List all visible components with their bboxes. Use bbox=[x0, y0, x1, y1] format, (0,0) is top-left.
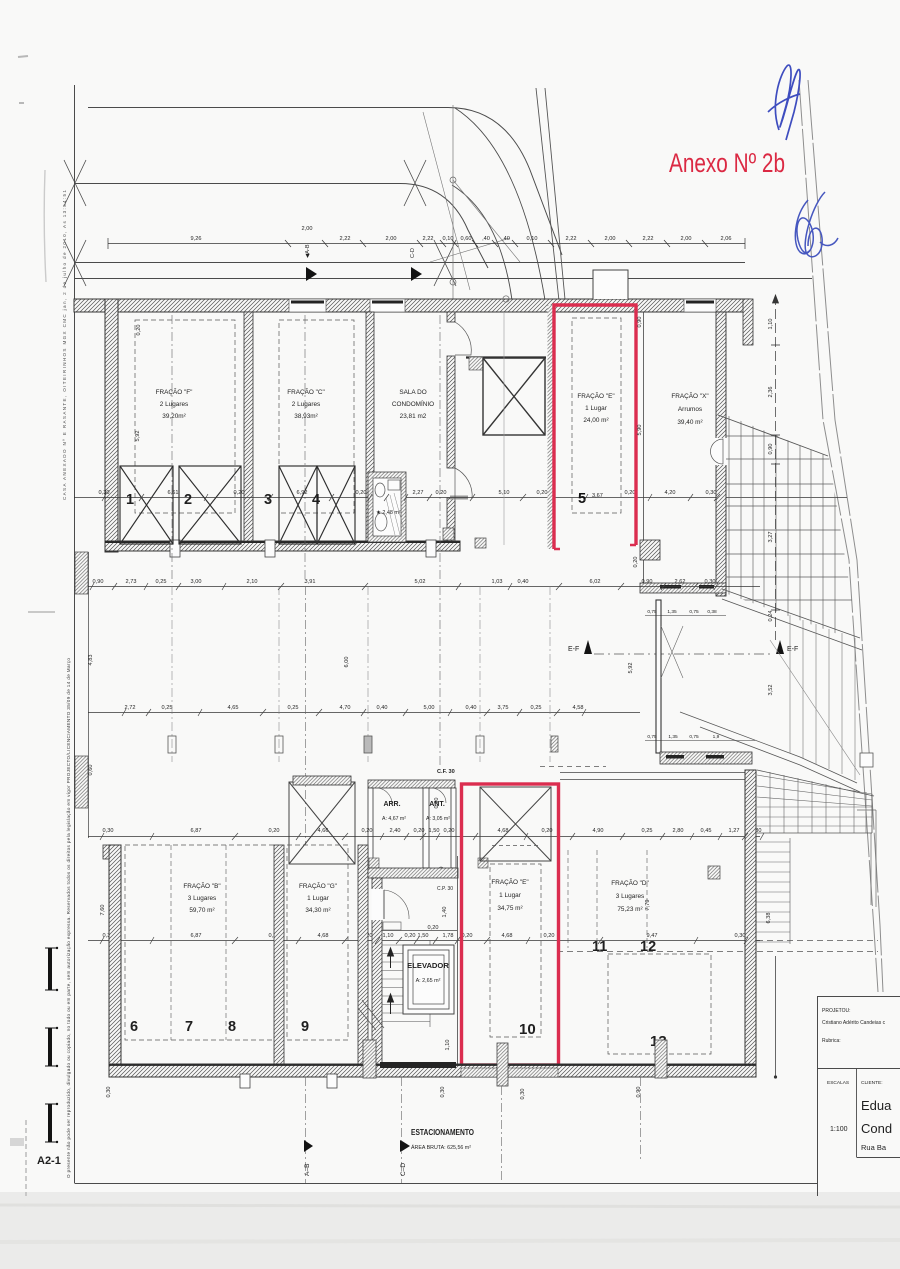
svg-text:ÁREA BRUTA: 625,56 m²: ÁREA BRUTA: 625,56 m² bbox=[411, 1144, 471, 1151]
svg-text:5,02: 5,02 bbox=[415, 579, 426, 585]
svg-text:3 Lugares: 3 Lugares bbox=[188, 895, 216, 902]
svg-text:0,25: 0,25 bbox=[642, 828, 653, 834]
svg-text:4,83: 4,83 bbox=[88, 655, 94, 666]
svg-text:ESCALAS: ESCALAS bbox=[827, 1080, 849, 1086]
svg-text:1,10: 1,10 bbox=[445, 1040, 451, 1051]
svg-text:2,06: 2,06 bbox=[721, 236, 732, 242]
svg-text:4,66: 4,66 bbox=[318, 828, 329, 834]
svg-text:6,02: 6,02 bbox=[590, 579, 601, 585]
svg-text:1,27: 1,27 bbox=[729, 828, 740, 834]
svg-text:0,90: 0,90 bbox=[768, 444, 774, 455]
svg-text:0,38: 0,38 bbox=[707, 609, 717, 615]
svg-text:4,70: 4,70 bbox=[340, 705, 351, 711]
svg-text:0,30: 0,30 bbox=[520, 1089, 526, 1100]
svg-text:6,87: 6,87 bbox=[191, 933, 202, 939]
svg-text:0,20: 0,20 bbox=[625, 490, 636, 496]
svg-text:0,90: 0,90 bbox=[636, 1087, 642, 1098]
svg-text:0,20: 0,20 bbox=[436, 490, 447, 496]
svg-text:1,35: 1,35 bbox=[668, 734, 678, 740]
svg-text:4,65: 4,65 bbox=[228, 705, 239, 711]
svg-text:1 Lugar: 1 Lugar bbox=[585, 405, 608, 412]
svg-text:34,75 m²: 34,75 m² bbox=[497, 905, 522, 912]
svg-text:2,22: 2,22 bbox=[423, 236, 434, 242]
svg-text:0,45: 0,45 bbox=[701, 828, 712, 834]
svg-text:FRAÇÃO "E": FRAÇÃO "E" bbox=[491, 877, 528, 886]
svg-text:FRAÇÃO "E": FRAÇÃO "E" bbox=[577, 391, 614, 400]
svg-text:0,25: 0,25 bbox=[288, 705, 299, 711]
svg-text:0,20: 0,20 bbox=[136, 325, 142, 336]
svg-text:2,00: 2,00 bbox=[681, 236, 692, 242]
svg-text:Cristiano Adérito Candeias c: Cristiano Adérito Candeias c bbox=[822, 1020, 886, 1026]
svg-text:SALA DO: SALA DO bbox=[399, 389, 426, 396]
svg-text:6,38: 6,38 bbox=[766, 913, 772, 924]
svg-text:39,20m²: 39,20m² bbox=[162, 413, 185, 420]
svg-text:0,75: 0,75 bbox=[647, 734, 657, 740]
svg-text:CLIENTE:: CLIENTE: bbox=[861, 1080, 883, 1086]
svg-text:A: 2,65 m²: A: 2,65 m² bbox=[416, 978, 441, 984]
svg-text:3,75: 3,75 bbox=[498, 705, 509, 711]
svg-text:2,00: 2,00 bbox=[302, 226, 313, 232]
svg-text:5,90: 5,90 bbox=[637, 425, 643, 436]
svg-text:6: 6 bbox=[130, 1019, 138, 1035]
svg-text:3 Lugares: 3 Lugares bbox=[616, 893, 644, 900]
svg-text:ELEVADOR: ELEVADOR bbox=[407, 961, 449, 970]
svg-text:0,20: 0,20 bbox=[356, 490, 367, 496]
svg-text:0,30: 0,30 bbox=[705, 579, 716, 585]
svg-text:PROJETOU:: PROJETOU: bbox=[822, 1008, 851, 1014]
svg-text:A: 3,05 m²: A: 3,05 m² bbox=[426, 816, 450, 822]
svg-text:2,80: 2,80 bbox=[673, 828, 684, 834]
svg-text:0,24: 0,24 bbox=[768, 611, 774, 622]
svg-text:1,50: 1,50 bbox=[418, 933, 429, 939]
svg-text:39,40 m²: 39,40 m² bbox=[677, 419, 702, 426]
svg-text:2,72: 2,72 bbox=[125, 705, 136, 711]
svg-text:4,68: 4,68 bbox=[502, 933, 513, 939]
svg-text:5,00: 5,00 bbox=[424, 705, 435, 711]
svg-text:Rubrica:: Rubrica: bbox=[822, 1038, 841, 1044]
svg-text:0,75: 0,75 bbox=[689, 734, 699, 740]
svg-text:3,00: 3,00 bbox=[191, 579, 202, 585]
svg-text:Edua: Edua bbox=[861, 1098, 892, 1113]
svg-text:59,70 m²: 59,70 m² bbox=[189, 907, 214, 914]
svg-text:5,92: 5,92 bbox=[135, 431, 141, 442]
svg-text:9: 9 bbox=[301, 1019, 309, 1035]
svg-text:,40: ,40 bbox=[482, 236, 490, 242]
svg-text:0,30: 0,30 bbox=[706, 490, 717, 496]
svg-text:4,20: 4,20 bbox=[665, 490, 676, 496]
svg-text:3,27: 3,27 bbox=[768, 532, 774, 543]
svg-text:0,25: 0,25 bbox=[156, 579, 167, 585]
svg-text:1,03: 1,03 bbox=[492, 579, 503, 585]
svg-text:6,00: 6,00 bbox=[344, 657, 350, 668]
svg-text:0,90: 0,90 bbox=[637, 317, 643, 328]
svg-text:FRAÇÃO "X": FRAÇÃO "X" bbox=[671, 391, 708, 400]
svg-text:2,00: 2,00 bbox=[386, 236, 397, 242]
svg-text:0,10: 0,10 bbox=[443, 236, 454, 242]
svg-text:FRAÇÃO "F": FRAÇÃO "F" bbox=[156, 387, 193, 396]
svg-text:0,40: 0,40 bbox=[466, 705, 477, 711]
svg-text:2,73: 2,73 bbox=[126, 579, 137, 585]
svg-text:0,10: 0,10 bbox=[527, 236, 538, 242]
svg-text:2,27: 2,27 bbox=[413, 490, 424, 496]
svg-text:O presente não pode ser reprod: O presente não pode ser reproduzido, div… bbox=[66, 658, 71, 1178]
svg-text:1:100: 1:100 bbox=[830, 1126, 848, 1133]
svg-text:2 Lugares: 2 Lugares bbox=[160, 401, 188, 408]
svg-text:◀A-B: ◀A-B bbox=[305, 244, 311, 258]
svg-text:1,78: 1,78 bbox=[443, 933, 454, 939]
svg-text:7,79: 7,79 bbox=[645, 900, 651, 911]
svg-text:C-D: C-D bbox=[410, 248, 416, 258]
svg-text:1,10: 1,10 bbox=[768, 319, 774, 330]
svg-text:0,90: 0,90 bbox=[642, 579, 653, 585]
svg-text:ESTACIONAMENTO: ESTACIONAMENTO bbox=[411, 1128, 474, 1137]
svg-text:4,90: 4,90 bbox=[593, 828, 604, 834]
svg-text:9,26: 9,26 bbox=[191, 236, 202, 242]
svg-text:0,60: 0,60 bbox=[461, 236, 472, 242]
svg-text:1,50: 1,50 bbox=[429, 828, 440, 834]
svg-text:6,87: 6,87 bbox=[191, 828, 202, 834]
svg-text:2,36: 2,36 bbox=[768, 387, 774, 398]
svg-text:C.F. 30: C.F. 30 bbox=[437, 769, 455, 775]
svg-text:3,52: 3,52 bbox=[768, 685, 774, 696]
svg-text:2 Lugares: 2 Lugares bbox=[292, 401, 320, 408]
svg-text:0,25: 0,25 bbox=[531, 705, 542, 711]
svg-text:A–B: A–B bbox=[304, 1163, 311, 1176]
svg-text:0,20: 0,20 bbox=[537, 490, 548, 496]
svg-text:C.P. 30: C.P. 30 bbox=[437, 886, 453, 892]
svg-text:0,20: 0,20 bbox=[444, 828, 455, 834]
svg-text:0,20: 0,20 bbox=[234, 490, 245, 496]
svg-text:1,10: 1,10 bbox=[383, 933, 394, 939]
svg-text:3,91: 3,91 bbox=[305, 579, 316, 585]
svg-text:0,20: 0,20 bbox=[362, 828, 373, 834]
svg-text:FRAÇÃO "D": FRAÇÃO "D" bbox=[611, 878, 649, 887]
svg-text:0,75: 0,75 bbox=[689, 609, 699, 615]
svg-text:2,40: 2,40 bbox=[390, 828, 401, 834]
svg-text:10: 10 bbox=[519, 1021, 536, 1038]
svg-text:38,93m²: 38,93m² bbox=[294, 413, 317, 420]
svg-text:2,00: 2,00 bbox=[605, 236, 616, 242]
svg-text:0,40: 0,40 bbox=[377, 705, 388, 711]
svg-text:4,58: 4,58 bbox=[573, 705, 584, 711]
svg-text:3: 3 bbox=[264, 492, 272, 508]
svg-text:12: 12 bbox=[640, 939, 656, 955]
svg-text:,40: ,40 bbox=[502, 236, 510, 242]
svg-text:E-F: E-F bbox=[787, 646, 798, 653]
svg-text:2,22: 2,22 bbox=[566, 236, 577, 242]
svg-text:0,30: 0,30 bbox=[440, 1087, 446, 1098]
svg-text:Anexo Nº 2b: Anexo Nº 2b bbox=[669, 148, 785, 178]
svg-text:6,61: 6,61 bbox=[168, 490, 179, 496]
svg-text:1 Lugar: 1 Lugar bbox=[499, 892, 522, 899]
svg-text:2,62: 2,62 bbox=[675, 579, 686, 585]
svg-text:34,30 m²: 34,30 m² bbox=[305, 907, 330, 914]
svg-text:1,35: 1,35 bbox=[667, 609, 677, 615]
svg-text:0,30: 0,30 bbox=[99, 490, 110, 496]
svg-text:0,60: 0,60 bbox=[88, 765, 94, 776]
svg-text:A: 4,67 m²: A: 4,67 m² bbox=[382, 816, 406, 822]
svg-text:0,20: 0,20 bbox=[544, 933, 555, 939]
svg-text:FRAÇÃO "C": FRAÇÃO "C" bbox=[287, 387, 325, 396]
svg-text:2,22: 2,22 bbox=[643, 236, 654, 242]
svg-text:1: 1 bbox=[126, 492, 134, 508]
svg-text:0,40: 0,40 bbox=[518, 579, 529, 585]
svg-text:E-F: E-F bbox=[568, 646, 579, 653]
svg-text:0,20: 0,20 bbox=[269, 828, 280, 834]
svg-text:0,20: 0,20 bbox=[633, 557, 639, 568]
svg-text:Cond: Cond bbox=[861, 1121, 892, 1136]
svg-text:1,9: 1,9 bbox=[713, 734, 720, 740]
svg-text:0,20: 0,20 bbox=[405, 933, 416, 939]
svg-text:CONDOMÍNIO: CONDOMÍNIO bbox=[392, 399, 434, 408]
svg-text:4,68: 4,68 bbox=[318, 933, 329, 939]
svg-text:3,67: 3,67 bbox=[592, 493, 603, 499]
svg-text:23,81 m2: 23,81 m2 bbox=[400, 413, 427, 420]
svg-text:1,40: 1,40 bbox=[442, 907, 448, 918]
svg-text:4: 4 bbox=[312, 492, 320, 508]
svg-text:6,92: 6,92 bbox=[297, 490, 308, 496]
svg-text:0,30: 0,30 bbox=[735, 933, 746, 939]
svg-text:FRAÇÃO "G": FRAÇÃO "G" bbox=[299, 881, 337, 890]
svg-text:A2-1: A2-1 bbox=[37, 1155, 61, 1167]
svg-text:Arrumos: Arrumos bbox=[678, 406, 702, 413]
svg-text:0,90: 0,90 bbox=[93, 579, 104, 585]
svg-text:CASA ANEXADO Nº E RASANTE,: CASA ANEXADO Nº E RASANTE, OITEIRINHOS M… bbox=[62, 190, 67, 500]
svg-text:2: 2 bbox=[184, 492, 192, 508]
svg-text:1 Lugar: 1 Lugar bbox=[307, 895, 330, 902]
svg-text:7,60: 7,60 bbox=[100, 905, 106, 916]
svg-text:0,20: 0,20 bbox=[414, 828, 425, 834]
svg-text:0,30: 0,30 bbox=[106, 1087, 112, 1098]
svg-text:★ 2,48 m²: ★ 2,48 m² bbox=[376, 510, 401, 516]
svg-text:FRAÇÃO "B": FRAÇÃO "B" bbox=[183, 881, 220, 890]
svg-text:2,10: 2,10 bbox=[247, 579, 258, 585]
svg-text:0,90: 0,90 bbox=[434, 798, 440, 809]
svg-text:0,30: 0,30 bbox=[103, 828, 114, 834]
svg-text:C–D: C–D bbox=[400, 1163, 407, 1176]
svg-text:Rua Ba: Rua Ba bbox=[861, 1143, 887, 1152]
svg-text:8: 8 bbox=[228, 1019, 236, 1035]
svg-text:2,22: 2,22 bbox=[340, 236, 351, 242]
svg-text:ARR.: ARR. bbox=[383, 801, 400, 808]
svg-text:7: 7 bbox=[185, 1019, 193, 1035]
svg-text:75,23 m²: 75,23 m² bbox=[617, 906, 642, 913]
svg-text:5,92: 5,92 bbox=[628, 663, 634, 674]
svg-text:0,75: 0,75 bbox=[647, 609, 657, 615]
svg-text:0,25: 0,25 bbox=[162, 705, 173, 711]
svg-text:24,00 m²: 24,00 m² bbox=[583, 417, 608, 424]
